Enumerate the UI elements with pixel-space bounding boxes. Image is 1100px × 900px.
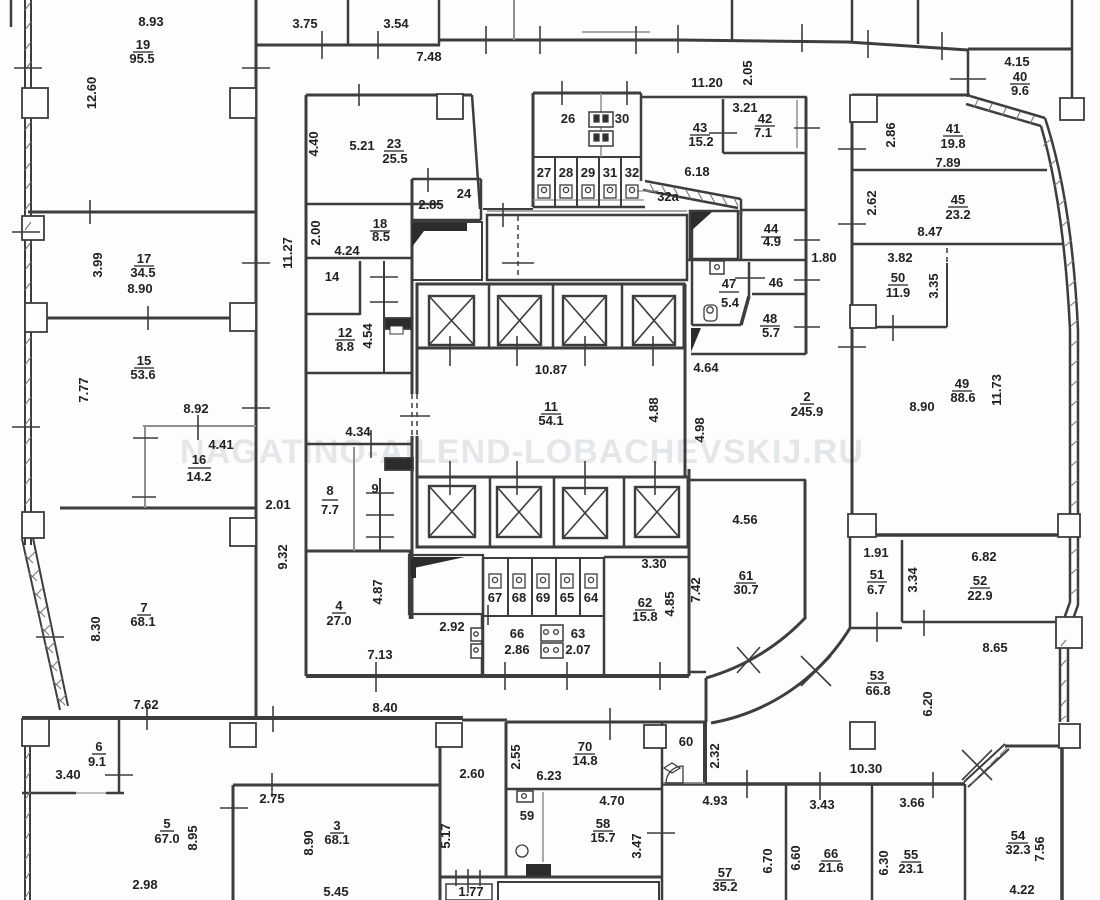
svg-text:27.0: 27.0: [326, 613, 351, 628]
svg-text:23.2: 23.2: [945, 207, 970, 222]
svg-text:4: 4: [335, 598, 343, 613]
svg-text:8.90: 8.90: [301, 830, 316, 855]
svg-text:8.92: 8.92: [183, 401, 208, 416]
svg-text:7.1: 7.1: [754, 125, 772, 140]
svg-text:11: 11: [544, 399, 558, 414]
svg-text:7: 7: [140, 600, 147, 615]
svg-text:10.30: 10.30: [850, 761, 883, 776]
svg-text:46: 46: [769, 275, 783, 290]
svg-text:95.5: 95.5: [129, 51, 154, 66]
svg-text:11.9: 11.9: [886, 285, 911, 300]
svg-text:4.9: 4.9: [763, 234, 781, 249]
svg-text:2.60: 2.60: [459, 766, 484, 781]
svg-text:50: 50: [891, 270, 905, 285]
svg-text:64: 64: [584, 590, 599, 605]
svg-text:25.5: 25.5: [382, 151, 407, 166]
svg-text:245.9: 245.9: [791, 404, 824, 419]
svg-text:27: 27: [537, 165, 551, 180]
svg-text:2: 2: [803, 389, 810, 404]
svg-text:2.07: 2.07: [565, 642, 590, 657]
svg-text:66.8: 66.8: [865, 683, 890, 698]
svg-text:3.34: 3.34: [905, 567, 920, 593]
svg-text:53.6: 53.6: [130, 367, 155, 382]
svg-text:3.66: 3.66: [899, 795, 924, 810]
svg-text:4.85: 4.85: [662, 591, 677, 616]
svg-text:49: 49: [955, 376, 969, 391]
svg-text:11.73: 11.73: [989, 374, 1004, 406]
svg-text:4.34: 4.34: [345, 424, 371, 439]
svg-text:4.87: 4.87: [370, 579, 385, 604]
svg-text:6: 6: [95, 739, 102, 754]
svg-text:6.30: 6.30: [876, 850, 891, 875]
svg-text:3.82: 3.82: [887, 250, 912, 265]
svg-text:4.64: 4.64: [693, 360, 719, 375]
svg-text:8.8: 8.8: [336, 339, 354, 354]
svg-text:69: 69: [536, 590, 550, 605]
svg-text:23.1: 23.1: [898, 861, 923, 876]
svg-text:2.00: 2.00: [308, 220, 323, 245]
svg-text:2.86: 2.86: [883, 122, 898, 147]
svg-text:3.47: 3.47: [629, 833, 644, 858]
svg-text:7.77: 7.77: [76, 377, 91, 402]
svg-text:62: 62: [638, 595, 652, 610]
svg-text:11.20: 11.20: [691, 75, 723, 90]
svg-text:8.40: 8.40: [372, 700, 397, 715]
svg-text:32.3: 32.3: [1005, 842, 1030, 857]
svg-text:68: 68: [512, 590, 526, 605]
svg-text:4.40: 4.40: [306, 131, 321, 156]
svg-text:4.22: 4.22: [1009, 882, 1034, 897]
svg-text:1.77: 1.77: [458, 884, 483, 899]
svg-text:4.98: 4.98: [692, 417, 707, 442]
svg-text:4.93: 4.93: [702, 793, 727, 808]
svg-text:2.01: 2.01: [265, 497, 290, 512]
svg-text:35.2: 35.2: [712, 879, 737, 894]
svg-text:7.48: 7.48: [416, 49, 441, 64]
svg-text:12.60: 12.60: [84, 77, 99, 110]
svg-text:10.87: 10.87: [535, 362, 568, 377]
svg-text:8.47: 8.47: [917, 224, 942, 239]
svg-text:3.54: 3.54: [383, 16, 409, 31]
svg-text:67.0: 67.0: [154, 831, 179, 846]
svg-text:88.6: 88.6: [950, 390, 975, 405]
svg-text:3: 3: [333, 818, 340, 833]
svg-text:4.24: 4.24: [334, 243, 360, 258]
svg-text:28: 28: [559, 165, 573, 180]
svg-text:5.17: 5.17: [438, 823, 453, 848]
svg-text:66: 66: [824, 846, 838, 861]
svg-text:70: 70: [578, 739, 592, 754]
svg-text:43: 43: [693, 120, 707, 135]
svg-text:19.8: 19.8: [940, 136, 965, 151]
svg-text:9.6: 9.6: [1011, 83, 1029, 98]
svg-text:2.92: 2.92: [439, 619, 464, 634]
svg-text:NAGATINO-AILEND-LOBACHEVSKIJ.R: NAGATINO-AILEND-LOBACHEVSKIJ.RU: [180, 433, 864, 471]
svg-text:15.8: 15.8: [632, 609, 657, 624]
svg-text:4.70: 4.70: [599, 793, 624, 808]
svg-text:7.13: 7.13: [367, 647, 392, 662]
svg-text:6.70: 6.70: [760, 848, 775, 873]
svg-text:66: 66: [510, 626, 524, 641]
svg-text:67: 67: [488, 590, 502, 605]
svg-text:8.90: 8.90: [127, 281, 152, 296]
svg-text:32: 32: [625, 165, 639, 180]
svg-text:3.43: 3.43: [809, 797, 834, 812]
svg-text:5.21: 5.21: [349, 138, 374, 153]
svg-text:1.91: 1.91: [863, 545, 888, 560]
svg-text:19: 19: [136, 37, 150, 52]
svg-text:48: 48: [763, 311, 777, 326]
svg-text:9.32: 9.32: [275, 544, 290, 569]
svg-text:2.55: 2.55: [508, 744, 523, 769]
svg-text:23: 23: [387, 136, 401, 151]
svg-text:22.9: 22.9: [967, 588, 992, 603]
svg-text:65: 65: [560, 590, 574, 605]
svg-text:51: 51: [870, 567, 884, 582]
svg-text:2.86: 2.86: [504, 642, 529, 657]
svg-text:47: 47: [722, 276, 736, 291]
svg-text:30.7: 30.7: [733, 582, 758, 597]
svg-text:2.32: 2.32: [707, 743, 722, 768]
svg-text:7.89: 7.89: [935, 155, 960, 170]
svg-text:8: 8: [326, 483, 333, 498]
svg-text:59: 59: [520, 808, 534, 823]
svg-text:45: 45: [951, 192, 965, 207]
svg-text:8.90: 8.90: [909, 399, 934, 414]
svg-text:54: 54: [1011, 828, 1026, 843]
svg-text:29: 29: [581, 165, 595, 180]
svg-text:15.7: 15.7: [590, 830, 615, 845]
svg-text:26: 26: [561, 111, 575, 126]
svg-text:12: 12: [338, 325, 352, 340]
svg-text:63: 63: [571, 626, 585, 641]
svg-text:6.60: 6.60: [788, 845, 803, 870]
svg-text:8.93: 8.93: [138, 14, 163, 29]
svg-text:61: 61: [739, 568, 753, 583]
svg-text:68.1: 68.1: [324, 832, 349, 847]
svg-text:1.80: 1.80: [811, 250, 836, 265]
svg-text:8.65: 8.65: [982, 640, 1007, 655]
svg-text:4.15: 4.15: [1004, 54, 1029, 69]
svg-text:16: 16: [192, 452, 206, 467]
svg-text:2.75: 2.75: [259, 791, 284, 806]
svg-text:14: 14: [325, 269, 340, 284]
svg-text:68.1: 68.1: [130, 614, 155, 629]
svg-text:7.62: 7.62: [133, 697, 158, 712]
svg-text:24: 24: [457, 186, 472, 201]
svg-text:8.95: 8.95: [185, 825, 200, 850]
svg-text:5: 5: [163, 816, 170, 831]
svg-text:40: 40: [1013, 69, 1027, 84]
svg-text:31: 31: [603, 165, 617, 180]
svg-text:3.75: 3.75: [292, 16, 317, 31]
svg-text:14.2: 14.2: [186, 469, 211, 484]
svg-text:4.56: 4.56: [732, 512, 757, 527]
svg-text:4.88: 4.88: [646, 397, 661, 422]
svg-text:5.4: 5.4: [721, 295, 740, 310]
svg-text:15.2: 15.2: [688, 134, 713, 149]
svg-text:5.7: 5.7: [762, 325, 780, 340]
svg-text:6.20: 6.20: [920, 691, 935, 716]
svg-text:7.7: 7.7: [321, 502, 339, 517]
svg-text:8.30: 8.30: [88, 616, 103, 641]
svg-text:7.56: 7.56: [1032, 836, 1047, 861]
svg-text:54.1: 54.1: [538, 413, 563, 428]
svg-text:30: 30: [615, 111, 629, 126]
svg-text:15: 15: [137, 353, 151, 368]
svg-text:3.30: 3.30: [641, 556, 666, 571]
svg-text:4.41: 4.41: [208, 437, 233, 452]
svg-text:3.21: 3.21: [732, 100, 757, 115]
svg-text:14.8: 14.8: [572, 753, 597, 768]
svg-text:4.54: 4.54: [360, 323, 375, 349]
svg-text:6.82: 6.82: [971, 549, 996, 564]
svg-text:6.7: 6.7: [867, 582, 885, 597]
svg-text:2.85: 2.85: [418, 197, 443, 212]
svg-text:3.40: 3.40: [55, 767, 80, 782]
svg-text:9.1: 9.1: [88, 754, 106, 769]
svg-text:58: 58: [596, 816, 610, 831]
svg-text:57: 57: [718, 865, 732, 880]
svg-text:55: 55: [904, 847, 918, 862]
svg-text:42: 42: [758, 111, 772, 126]
svg-text:11.27: 11.27: [280, 237, 295, 269]
svg-text:41: 41: [946, 121, 960, 136]
svg-text:53: 53: [870, 668, 884, 683]
svg-text:3.99: 3.99: [90, 252, 105, 277]
svg-text:6.18: 6.18: [684, 164, 709, 179]
svg-text:9: 9: [371, 481, 378, 496]
svg-text:21.6: 21.6: [818, 860, 843, 875]
svg-text:60: 60: [679, 734, 693, 749]
svg-text:5.45: 5.45: [323, 884, 348, 899]
svg-text:2.62: 2.62: [864, 190, 879, 215]
svg-text:3.35: 3.35: [926, 273, 941, 298]
svg-text:34.5: 34.5: [130, 265, 155, 280]
svg-text:52: 52: [973, 573, 987, 588]
svg-text:6.23: 6.23: [536, 768, 561, 783]
svg-text:32a: 32a: [657, 189, 679, 204]
svg-text:17: 17: [137, 251, 151, 266]
svg-text:2.98: 2.98: [132, 877, 157, 892]
svg-text:7.42: 7.42: [688, 577, 703, 602]
svg-text:2.05: 2.05: [740, 60, 755, 85]
